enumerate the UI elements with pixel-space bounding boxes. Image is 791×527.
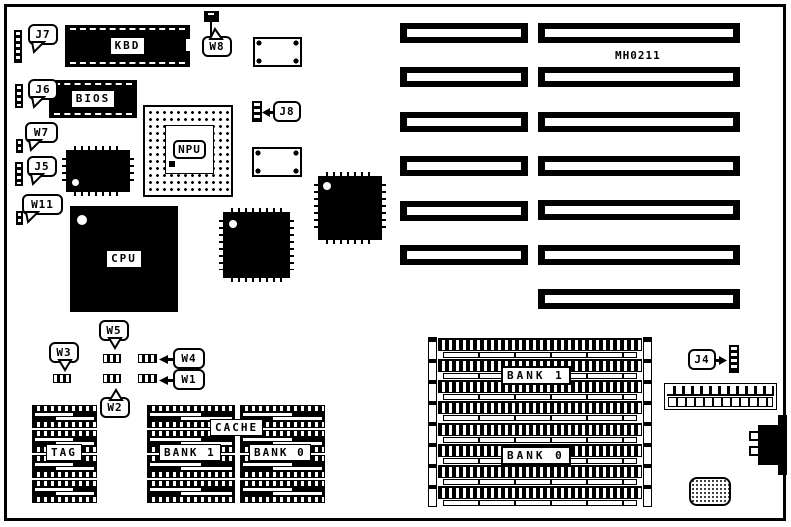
isa-slot — [538, 156, 740, 176]
jumper-w8-pin — [208, 13, 214, 15]
motherboard-diagram: J7 J6 W7 J5 W11 KBD BIOS W8 — [0, 0, 791, 527]
isa-slot — [400, 112, 528, 132]
isa-slot — [538, 200, 740, 220]
isa-slot — [538, 112, 740, 132]
connector-j5 — [15, 162, 23, 186]
npu-label: NPU — [173, 140, 206, 159]
chip-pins — [147, 496, 235, 503]
chip-pins — [240, 480, 325, 487]
callout-j6: J6 — [28, 79, 58, 100]
callout-tail — [30, 42, 46, 53]
callout-w5: W5 — [99, 320, 129, 341]
simm-rows — [438, 338, 642, 506]
cache-bank0-label: BANK 0 — [249, 444, 311, 461]
simm-spacer — [443, 437, 637, 443]
chip-pins — [240, 405, 325, 412]
chip-notch — [186, 39, 190, 51]
callout-w5-label: W5 — [106, 324, 121, 337]
callout-w4: W4 — [173, 348, 205, 369]
isa-slot — [400, 156, 528, 176]
simm-contacts — [438, 465, 642, 478]
jumper-w3 — [53, 374, 71, 383]
chip-pins — [240, 471, 325, 478]
callout-w8: W8 — [202, 36, 232, 57]
dip-chip — [147, 480, 235, 503]
tag-label: TAG — [46, 444, 82, 461]
chip-pins — [32, 471, 97, 478]
isa-slot — [538, 245, 740, 265]
chip-body — [240, 462, 325, 471]
callout-j5-label: J5 — [34, 160, 49, 173]
callout-tail — [24, 212, 40, 223]
callout-tail — [107, 338, 123, 349]
callout-w1-label: W1 — [181, 373, 196, 386]
callout-w3: W3 — [49, 342, 79, 363]
chip-body — [32, 462, 97, 471]
simm-spacer — [443, 479, 637, 485]
isa-slots-left-column — [400, 23, 528, 265]
isa-slots-right-column — [538, 23, 740, 309]
chip-pins — [32, 405, 97, 412]
simm-spacer — [443, 394, 637, 400]
chip-body — [32, 412, 97, 421]
cache-label: CACHE — [210, 419, 263, 436]
socket-dash-line — [70, 62, 185, 64]
socket-dash-line — [54, 83, 132, 85]
npu-socket: NPU — [143, 105, 233, 197]
simm-contacts — [438, 423, 642, 436]
chip-pins — [32, 480, 97, 487]
callout-arrow — [262, 107, 275, 118]
chip-pins — [147, 471, 235, 478]
pin1-dot — [77, 215, 87, 225]
isa-slot — [400, 245, 528, 265]
qfp-chip-small — [66, 150, 130, 192]
cpu-chip: CPU — [70, 206, 178, 312]
callout-w7: W7 — [25, 122, 58, 143]
simm-contacts — [438, 401, 642, 414]
chip-body — [147, 462, 235, 471]
simm-socket — [438, 423, 642, 443]
simm-spacer — [443, 415, 637, 421]
isa-slot — [400, 201, 528, 221]
chip-body — [147, 487, 235, 496]
callout-tail — [30, 97, 46, 108]
simm-socket-area: BANK 1 BANK 0 — [428, 337, 652, 507]
din-pin — [749, 446, 760, 456]
callout-w2: W2 — [100, 397, 130, 418]
callout-tail — [27, 140, 43, 151]
callout-j7: J7 — [28, 24, 58, 45]
isa-slot — [538, 23, 740, 43]
board-part-number: MH0211 — [615, 49, 661, 62]
oscillator-outline-top — [253, 37, 302, 67]
npu-socket-center: NPU — [165, 125, 214, 174]
simm-socket — [438, 486, 642, 506]
callout-arrow — [159, 354, 175, 365]
callout-j8: J8 — [273, 101, 301, 122]
simm-rail-right — [643, 337, 652, 507]
callout-tail — [108, 389, 124, 400]
callout-w3-label: W3 — [56, 346, 71, 359]
simm-rail-left — [428, 337, 437, 507]
chip-pins — [32, 430, 97, 437]
connector-w11 — [16, 211, 23, 225]
pin1-dot — [229, 220, 237, 228]
jumper-w2 — [103, 374, 121, 383]
cache-bank1-label: BANK 1 — [159, 444, 221, 461]
callout-w11: W11 — [22, 194, 63, 215]
dip-chip — [32, 405, 97, 428]
din-pin — [749, 431, 760, 441]
callout-j4-label: J4 — [694, 353, 709, 366]
isa-slot — [400, 67, 528, 87]
chip-pins — [314, 184, 386, 232]
dip-chip — [240, 480, 325, 503]
simm-socket — [438, 401, 642, 421]
power-connector — [664, 383, 777, 410]
chip-pins — [147, 405, 235, 412]
simm-spacer — [443, 352, 637, 358]
chip-pins — [32, 496, 97, 503]
jumper-w5 — [103, 354, 121, 363]
isa-slot — [400, 23, 528, 43]
cpu-label: CPU — [107, 251, 141, 267]
callout-j4: J4 — [688, 349, 716, 370]
jumper-w1 — [138, 374, 157, 383]
callout-w2-label: W2 — [107, 401, 122, 414]
qfp-chip-center — [223, 212, 290, 278]
pin1-dot — [323, 182, 331, 190]
speaker-component — [689, 477, 731, 506]
kbd-controller-chip: KBD — [65, 25, 190, 67]
chip-body — [32, 487, 97, 496]
isa-slot — [538, 67, 740, 87]
qfp-chip-right — [318, 176, 382, 240]
bios-chip: BIOS — [49, 80, 137, 118]
simm-contacts — [438, 338, 642, 351]
simm-contacts — [438, 486, 642, 499]
bios-label: BIOS — [72, 91, 115, 107]
simm-bank1-label: BANK 1 — [501, 366, 571, 385]
power-pins-row — [667, 386, 774, 396]
connector-j8 — [252, 101, 262, 122]
callout-j8-label: J8 — [279, 105, 294, 118]
simm-bank0-label: BANK 0 — [501, 446, 571, 465]
connector-w7 — [16, 139, 23, 153]
callout-arrow — [159, 375, 175, 386]
callout-j7-label: J7 — [35, 28, 50, 41]
chip-pins — [32, 421, 97, 428]
dip-chip — [32, 480, 97, 503]
socket-dash-line — [70, 28, 185, 30]
callout-w4-label: W4 — [181, 352, 196, 365]
callout-j5: J5 — [27, 156, 57, 177]
callout-tail — [57, 360, 73, 371]
kbd-label: KBD — [111, 38, 145, 54]
connector-j7 — [14, 30, 22, 63]
chip-body — [240, 487, 325, 496]
callout-w8-label: W8 — [209, 40, 224, 53]
power-pins-row — [668, 397, 773, 407]
din-body-step — [778, 415, 787, 475]
simm-socket — [438, 465, 642, 485]
callout-w1: W1 — [173, 369, 205, 390]
callout-w11-label: W11 — [31, 198, 54, 211]
oscillator-outline-bottom — [252, 147, 302, 177]
chip-pins — [240, 496, 325, 503]
jumper-w4 — [138, 354, 157, 363]
chip-pins — [147, 480, 235, 487]
callout-j6-label: J6 — [35, 83, 50, 96]
simm-socket — [438, 338, 642, 358]
pin1-marker — [169, 161, 175, 167]
isa-slot — [538, 289, 740, 309]
connector-j6 — [15, 84, 23, 108]
callout-arrow — [714, 355, 727, 366]
callout-w7-label: W7 — [34, 126, 49, 139]
callout-tail — [208, 28, 224, 39]
connector-j4 — [729, 345, 739, 373]
pin1-dot — [72, 179, 79, 186]
socket-dash-line — [54, 113, 132, 115]
simm-spacer — [443, 500, 637, 506]
callout-tail — [29, 174, 45, 185]
